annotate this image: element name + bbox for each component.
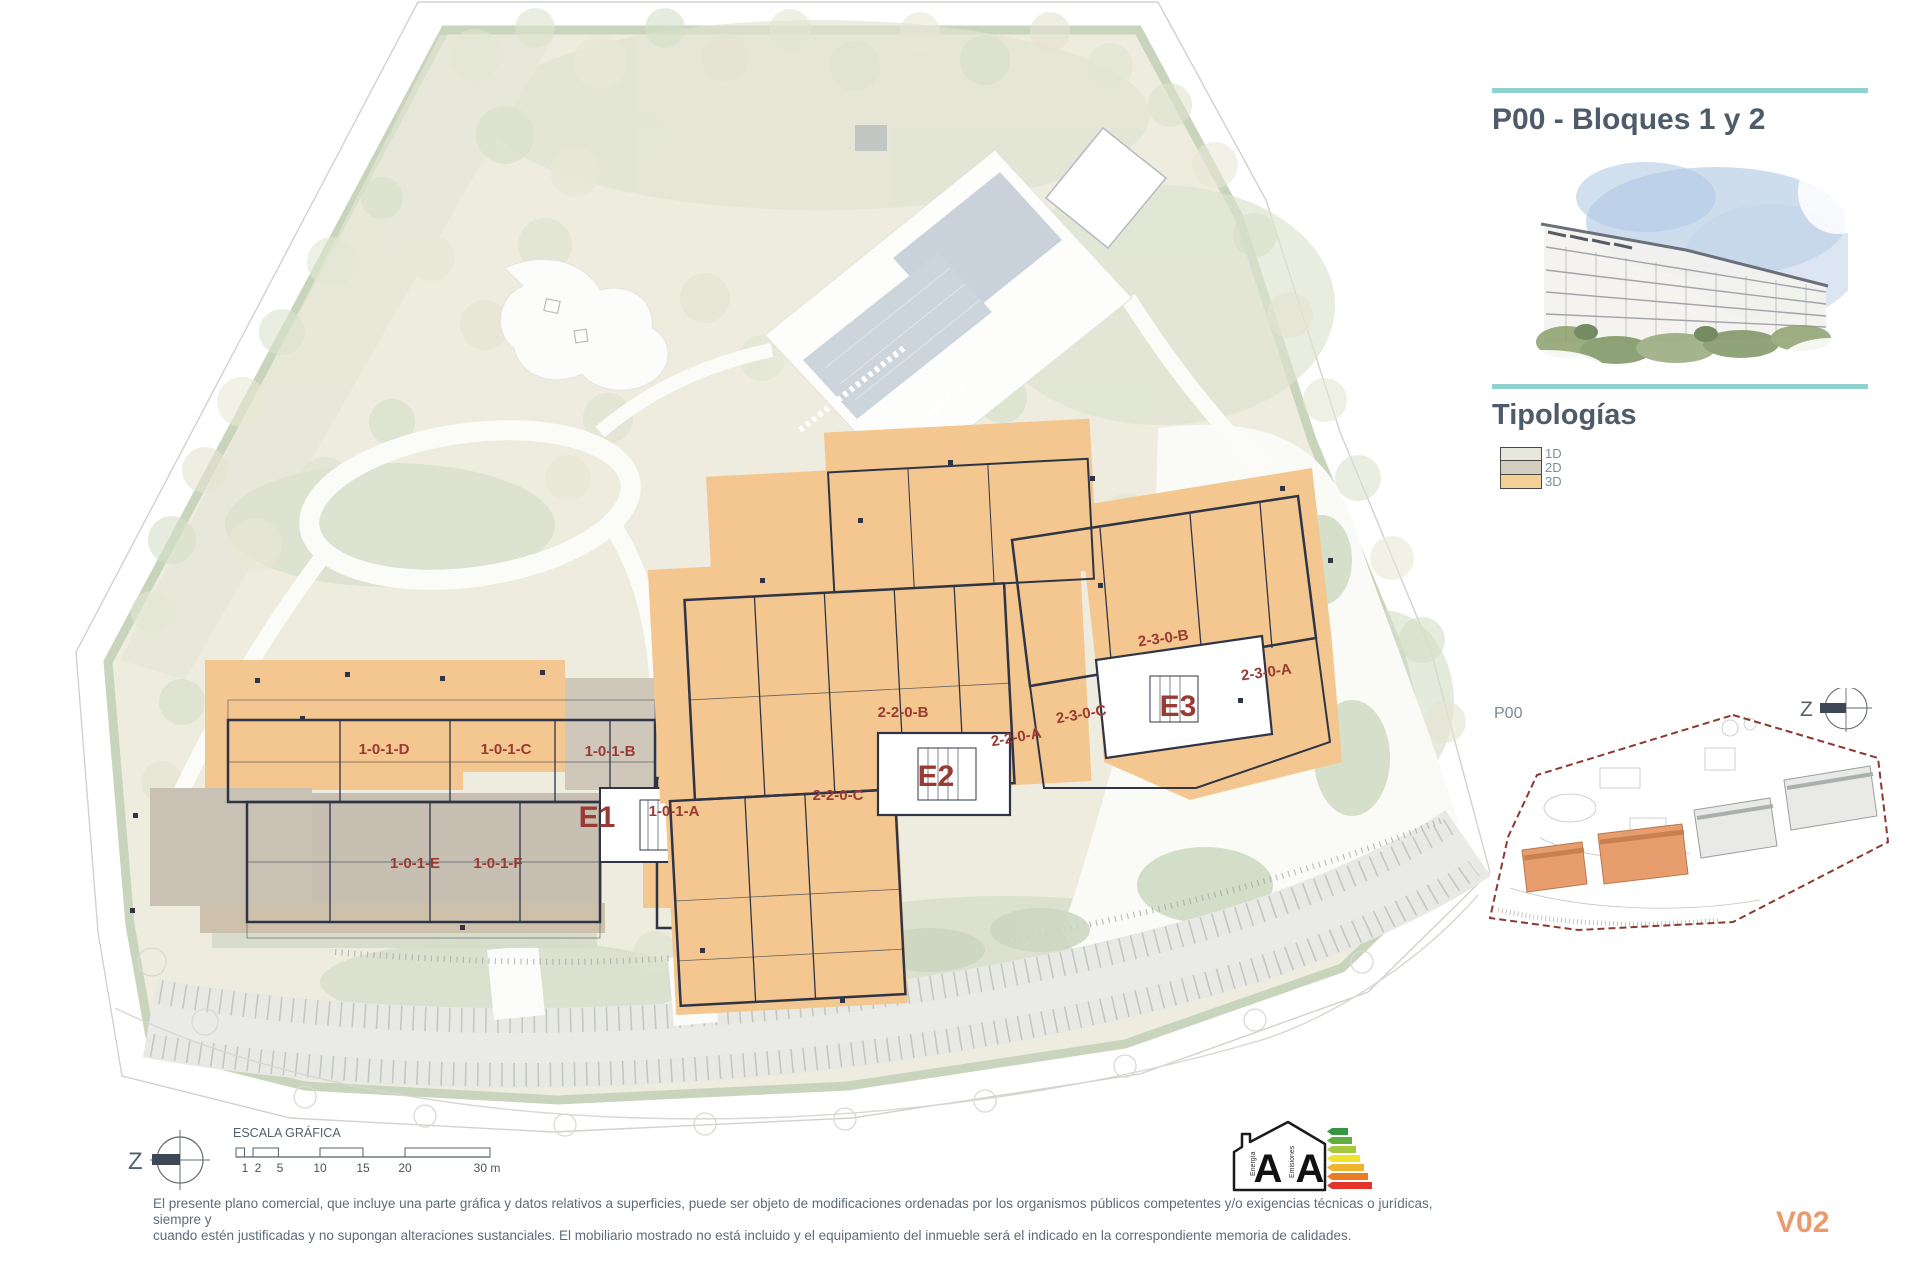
legend-swatch-2d — [1500, 461, 1542, 475]
legend-label-3d: 3D — [1545, 475, 1562, 489]
scale-tick-1: 1 — [242, 1161, 249, 1175]
disclaimer-line-2: cuando estén justificadas y no supongan … — [153, 1228, 1433, 1244]
keyplan-other-buildings — [1694, 766, 1877, 858]
page-title: P00 - Bloques 1 y 2 — [1492, 103, 1765, 137]
legend-row-1d: 1D — [1500, 447, 1562, 461]
title-rule-top — [1492, 88, 1868, 93]
unit-label-101e: 1-0-1-E — [390, 855, 440, 872]
core-label-e2: E2 — [918, 760, 955, 793]
unit-label-101c: 1-0-1-C — [481, 741, 532, 758]
keyplan-parking — [1498, 910, 1720, 924]
typology-legend: 1D 2D 3D — [1500, 447, 1562, 489]
unit-label-101a: 1-0-1-A — [649, 803, 700, 820]
legend-label-1d: 1D — [1545, 447, 1562, 461]
legend-swatch-1d — [1500, 447, 1542, 461]
scale-bar: ESCALA GRÁFICA 1 2 5 10 15 20 30 m — [233, 1125, 500, 1175]
north-compass: Z — [128, 1130, 210, 1190]
typologies-heading: Tipologías — [1492, 399, 1636, 432]
core-label-e3: E3 — [1160, 690, 1197, 723]
scale-tick-10: 10 — [313, 1161, 327, 1175]
energy-letter-emisiones: A — [1296, 1147, 1325, 1191]
keyplan-compass: Z — [1800, 688, 1872, 732]
scale-bar-title: ESCALA GRÁFICA — [233, 1125, 341, 1140]
legend-row-2d: 2D — [1500, 461, 1562, 475]
energy-arrows — [1327, 1128, 1372, 1189]
unit-label-220c: 2-2-0-C — [813, 787, 864, 804]
energy-rating-label: Energía A Emisiones A — [1228, 1116, 1388, 1200]
legend-swatch-3d — [1500, 475, 1542, 489]
legend-row-3d: 3D — [1500, 475, 1562, 489]
title-rule-bottom — [1492, 384, 1868, 389]
keyplan-compass-letter: Z — [1800, 698, 1813, 721]
unit-label-101d: 1-0-1-D — [359, 741, 410, 758]
energy-letter-energia: A — [1254, 1147, 1283, 1191]
disclaimer-line-1: El presente plano comercial, que incluye… — [153, 1196, 1433, 1228]
building-render — [1526, 152, 1848, 384]
legend-label-2d: 2D — [1545, 461, 1562, 475]
disclaimer: El presente plano comercial, que incluye… — [153, 1196, 1433, 1244]
scale-tick-15: 15 — [356, 1161, 370, 1175]
core-label-e1: E1 — [579, 801, 616, 834]
scale-tick-30: 30 m — [474, 1161, 501, 1175]
scale-tick-2: 2 — [255, 1161, 262, 1175]
keyplan-label: P00 — [1494, 705, 1523, 722]
compass-letter: Z — [128, 1148, 143, 1175]
key-plan: P00 Z — [1480, 688, 1910, 940]
scale-tick-20: 20 — [398, 1161, 412, 1175]
unit-label-220b: 2-2-0-B — [878, 704, 929, 721]
scale-tick-5: 5 — [277, 1161, 284, 1175]
version-tag: V02 — [1776, 1206, 1829, 1240]
keyplan-highlighted-buildings — [1522, 824, 1688, 892]
unit-label-101f: 1-0-1-F — [473, 855, 522, 872]
unit-label-101b: 1-0-1-B — [585, 743, 636, 760]
